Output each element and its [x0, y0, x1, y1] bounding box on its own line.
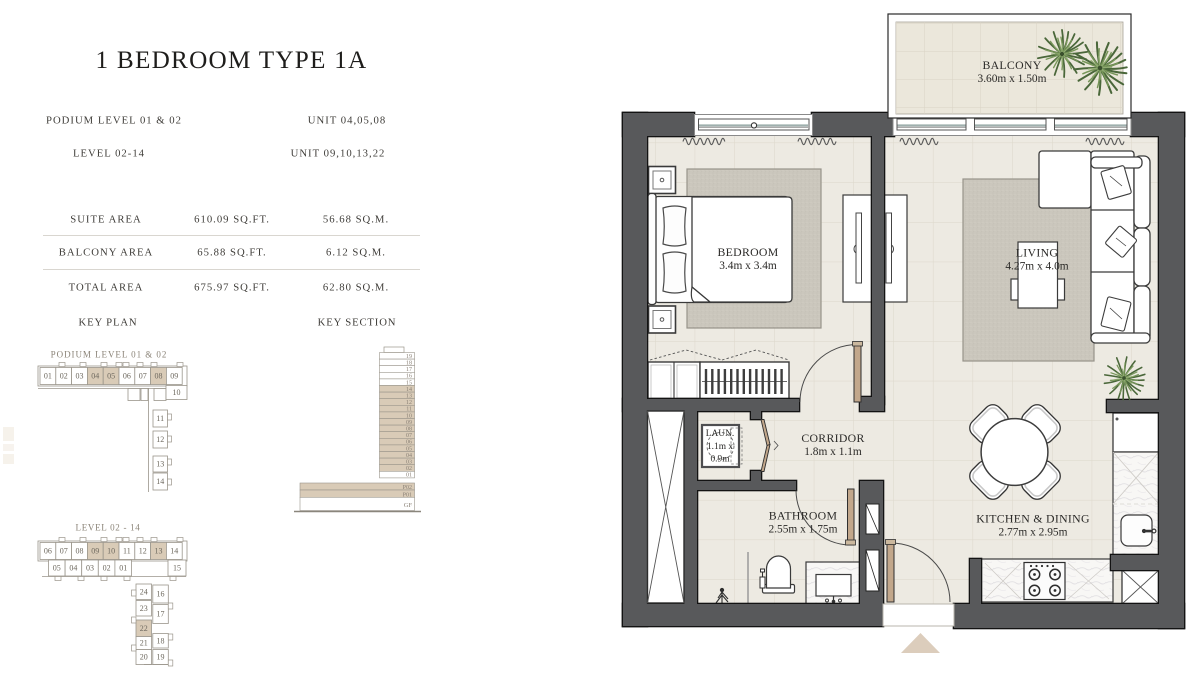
- svg-text:3.4m x 3.4m: 3.4m x 3.4m: [719, 260, 777, 272]
- svg-text:CORRIDOR: CORRIDOR: [801, 431, 864, 445]
- svg-text:1.8m x 1.1m: 1.8m x 1.1m: [804, 446, 862, 458]
- svg-text:2.55m x 1.75m: 2.55m x 1.75m: [769, 524, 838, 536]
- svg-text:LAUN.: LAUN.: [706, 429, 734, 439]
- svg-text:0.9m: 0.9m: [710, 455, 730, 465]
- svg-text:3.60m x 1.50m: 3.60m x 1.50m: [978, 73, 1047, 85]
- svg-text:2.77m x 2.95m: 2.77m x 2.95m: [999, 527, 1068, 539]
- svg-text:KITCHEN & DINING: KITCHEN & DINING: [976, 512, 1090, 526]
- svg-text:BALCONY: BALCONY: [982, 58, 1041, 72]
- svg-text:BEDROOM: BEDROOM: [717, 245, 778, 259]
- svg-text:LIVING: LIVING: [1016, 246, 1059, 260]
- svg-text:BATHROOM: BATHROOM: [769, 509, 838, 523]
- svg-text:1.1m x: 1.1m x: [707, 442, 733, 452]
- svg-text:4.27m x 4.0m: 4.27m x 4.0m: [1005, 261, 1068, 273]
